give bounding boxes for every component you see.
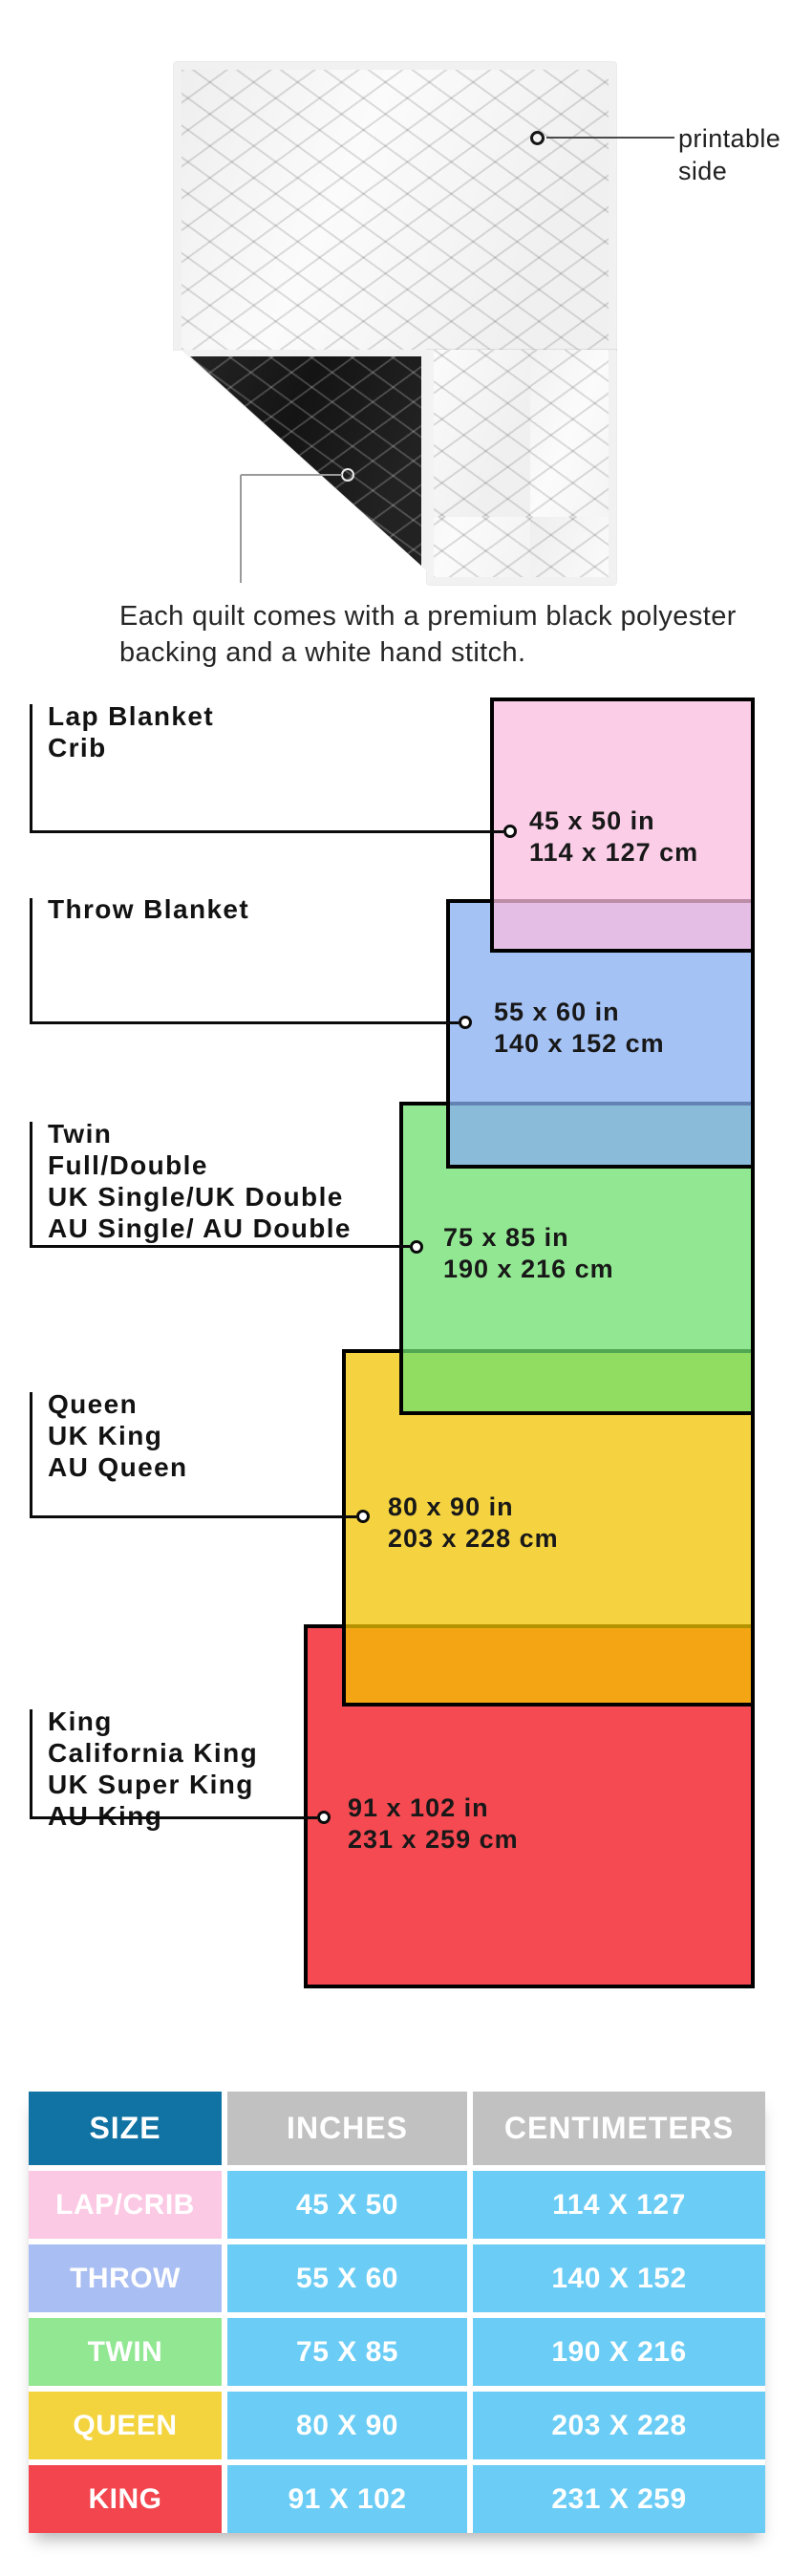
size-label-queen-line3: AU Queen <box>48 1451 188 1483</box>
size-label-lap-line2: Crib <box>48 732 214 763</box>
leader-v-king <box>30 1709 32 1819</box>
size-label-lap-line1: Lap Blanket <box>48 700 214 732</box>
printable-side-label-line1: printable <box>678 122 780 155</box>
table-row-queen-cm: 203 X 228 <box>473 2392 765 2459</box>
size-label-twin-line3: UK Single/UK Double <box>48 1181 352 1213</box>
size-label-king-line2: California King <box>48 1737 258 1769</box>
leader-h-throw <box>30 1021 459 1024</box>
size-label-lap: Lap BlanketCrib <box>48 700 214 763</box>
leader-v-queen <box>30 1392 32 1518</box>
size-label-twin-line4: AU Single/ AU Double <box>48 1213 352 1244</box>
quilt-caption-line2: backing and a white hand stitch. <box>119 634 737 671</box>
size-label-throw-line1: Throw Blanket <box>48 893 249 925</box>
size-label-king: KingCalifornia KingUK Super KingAU King <box>48 1706 258 1832</box>
leader-h-twin <box>30 1245 410 1248</box>
size-label-queen-line2: UK King <box>48 1420 188 1451</box>
size-table: SIZEINCHESCENTIMETERSLAP/CRIB45 X 50114 … <box>29 2092 765 2533</box>
backing-marker-icon <box>341 468 354 482</box>
printable-side-label: printable side <box>678 122 780 187</box>
table-row-king-inches: 91 X 102 <box>227 2465 467 2533</box>
size-dims-queen: 80 x 90 in203 x 228 cm <box>388 1492 559 1555</box>
leader-h-king <box>30 1816 317 1819</box>
quilt-folded-corner <box>181 350 427 571</box>
backing-leader-line-v <box>240 475 242 583</box>
size-dims-queen-inches: 80 x 90 in <box>388 1492 559 1523</box>
leader-h-lap <box>30 830 503 833</box>
quilt-black-backing <box>190 356 421 566</box>
leader-circle-king <box>317 1811 331 1824</box>
leader-v-twin <box>30 1122 32 1248</box>
table-row-lap-crib-size: LAP/CRIB <box>29 2171 222 2239</box>
size-label-queen: QueenUK KingAU Queen <box>48 1388 188 1483</box>
quilt-size-infographic: printable side Each quilt comes with a p… <box>0 0 791 2576</box>
size-dims-king-cm: 231 x 259 cm <box>348 1824 519 1856</box>
size-dims-twin-inches: 75 x 85 in <box>443 1222 614 1254</box>
size-label-twin-line1: Twin <box>48 1118 352 1149</box>
size-dims-king: 91 x 102 in231 x 259 cm <box>348 1792 519 1856</box>
size-label-queen-line1: Queen <box>48 1388 188 1420</box>
size-dims-twin: 75 x 85 in190 x 216 cm <box>443 1222 614 1285</box>
size-dims-king-inches: 91 x 102 in <box>348 1792 519 1824</box>
leader-circle-lap <box>503 825 517 838</box>
size-dims-lap-cm: 114 x 127 cm <box>529 837 698 869</box>
table-row-twin-size: TWIN <box>29 2318 222 2386</box>
quilt-caption-line1: Each quilt comes with a premium black po… <box>119 598 737 634</box>
size-dims-lap: 45 x 50 in114 x 127 cm <box>529 805 698 869</box>
size-label-throw: Throw Blanket <box>48 893 249 925</box>
table-header-inches: INCHES <box>227 2092 467 2165</box>
table-row-twin-cm: 190 X 216 <box>473 2318 765 2386</box>
table-row-lap-crib-cm: 114 X 127 <box>473 2171 765 2239</box>
table-header-centimeters: CENTIMETERS <box>473 2092 765 2165</box>
leader-circle-queen <box>356 1510 370 1523</box>
quilt-front-column <box>427 350 616 585</box>
quilt-front-top <box>174 62 616 350</box>
size-label-twin-line2: Full/Double <box>48 1149 352 1181</box>
table-row-king-cm: 231 X 259 <box>473 2465 765 2533</box>
size-dims-throw: 55 x 60 in140 x 152 cm <box>494 997 665 1060</box>
table-row-throw-cm: 140 X 152 <box>473 2244 765 2312</box>
size-dims-lap-inches: 45 x 50 in <box>529 805 698 837</box>
printable-side-marker-icon <box>530 131 545 145</box>
size-label-king-line1: King <box>48 1706 258 1737</box>
backing-leader-line-h <box>241 474 342 476</box>
table-row-throw-inches: 55 X 60 <box>227 2244 467 2312</box>
size-dims-throw-inches: 55 x 60 in <box>494 997 665 1028</box>
table-row-queen-size: QUEEN <box>29 2392 222 2459</box>
size-label-king-line3: UK Super King <box>48 1769 258 1800</box>
leader-v-lap <box>30 704 32 833</box>
table-header-size: SIZE <box>29 2092 222 2165</box>
leader-v-throw <box>30 898 32 1024</box>
table-row-twin-inches: 75 X 85 <box>227 2318 467 2386</box>
table-row-king-size: KING <box>29 2465 222 2533</box>
leader-h-queen <box>30 1515 356 1518</box>
leader-circle-throw <box>459 1016 472 1029</box>
table-row-throw-size: THROW <box>29 2244 222 2312</box>
leader-circle-twin <box>410 1240 423 1254</box>
printable-side-label-line2: side <box>678 155 780 187</box>
size-dims-throw-cm: 140 x 152 cm <box>494 1028 665 1060</box>
size-dims-queen-cm: 203 x 228 cm <box>388 1523 559 1555</box>
size-label-twin: TwinFull/DoubleUK Single/UK DoubleAU Sin… <box>48 1118 352 1244</box>
quilt-caption: Each quilt comes with a premium black po… <box>119 598 737 671</box>
size-dims-twin-cm: 190 x 216 cm <box>443 1254 614 1285</box>
printable-side-leader-line <box>546 137 674 139</box>
table-row-queen-inches: 80 X 90 <box>227 2392 467 2459</box>
table-row-lap-crib-inches: 45 X 50 <box>227 2171 467 2239</box>
